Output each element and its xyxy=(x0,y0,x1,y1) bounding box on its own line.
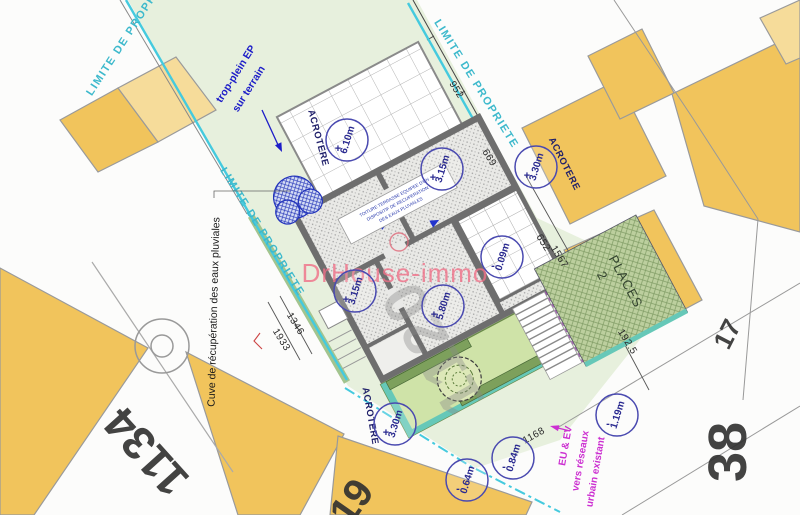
bubble-3-30-bottom: + 3.30m xyxy=(374,403,416,445)
bubble-1-19: - 1.19m xyxy=(596,394,638,436)
bubble-3-30-right: + 3.30m xyxy=(515,146,557,188)
site-plan: TOITURE TERRASSE EQUIPEE D'UN DISPOSITIF… xyxy=(0,0,800,515)
bubble-3-15-a: + 3.15m xyxy=(421,148,463,190)
bubble-6-10: + 6.10m xyxy=(326,119,368,161)
bubble-3-15-b: + 3.15m xyxy=(334,270,376,312)
bubble-0-64: - 0.64m xyxy=(446,459,488,501)
bubble-0-09: - 0.09m xyxy=(481,236,523,278)
site-plan-canvas: TOITURE TERRASSE EQUIPEE D'UN DISPOSITIF… xyxy=(0,0,800,515)
watermark: DrHouse-immo xyxy=(302,258,489,288)
bubble-0-84: - 0.84m xyxy=(492,437,534,479)
parcel-number-38: 38 xyxy=(698,422,758,482)
bubble-5-80: + 5.80m xyxy=(422,285,464,327)
